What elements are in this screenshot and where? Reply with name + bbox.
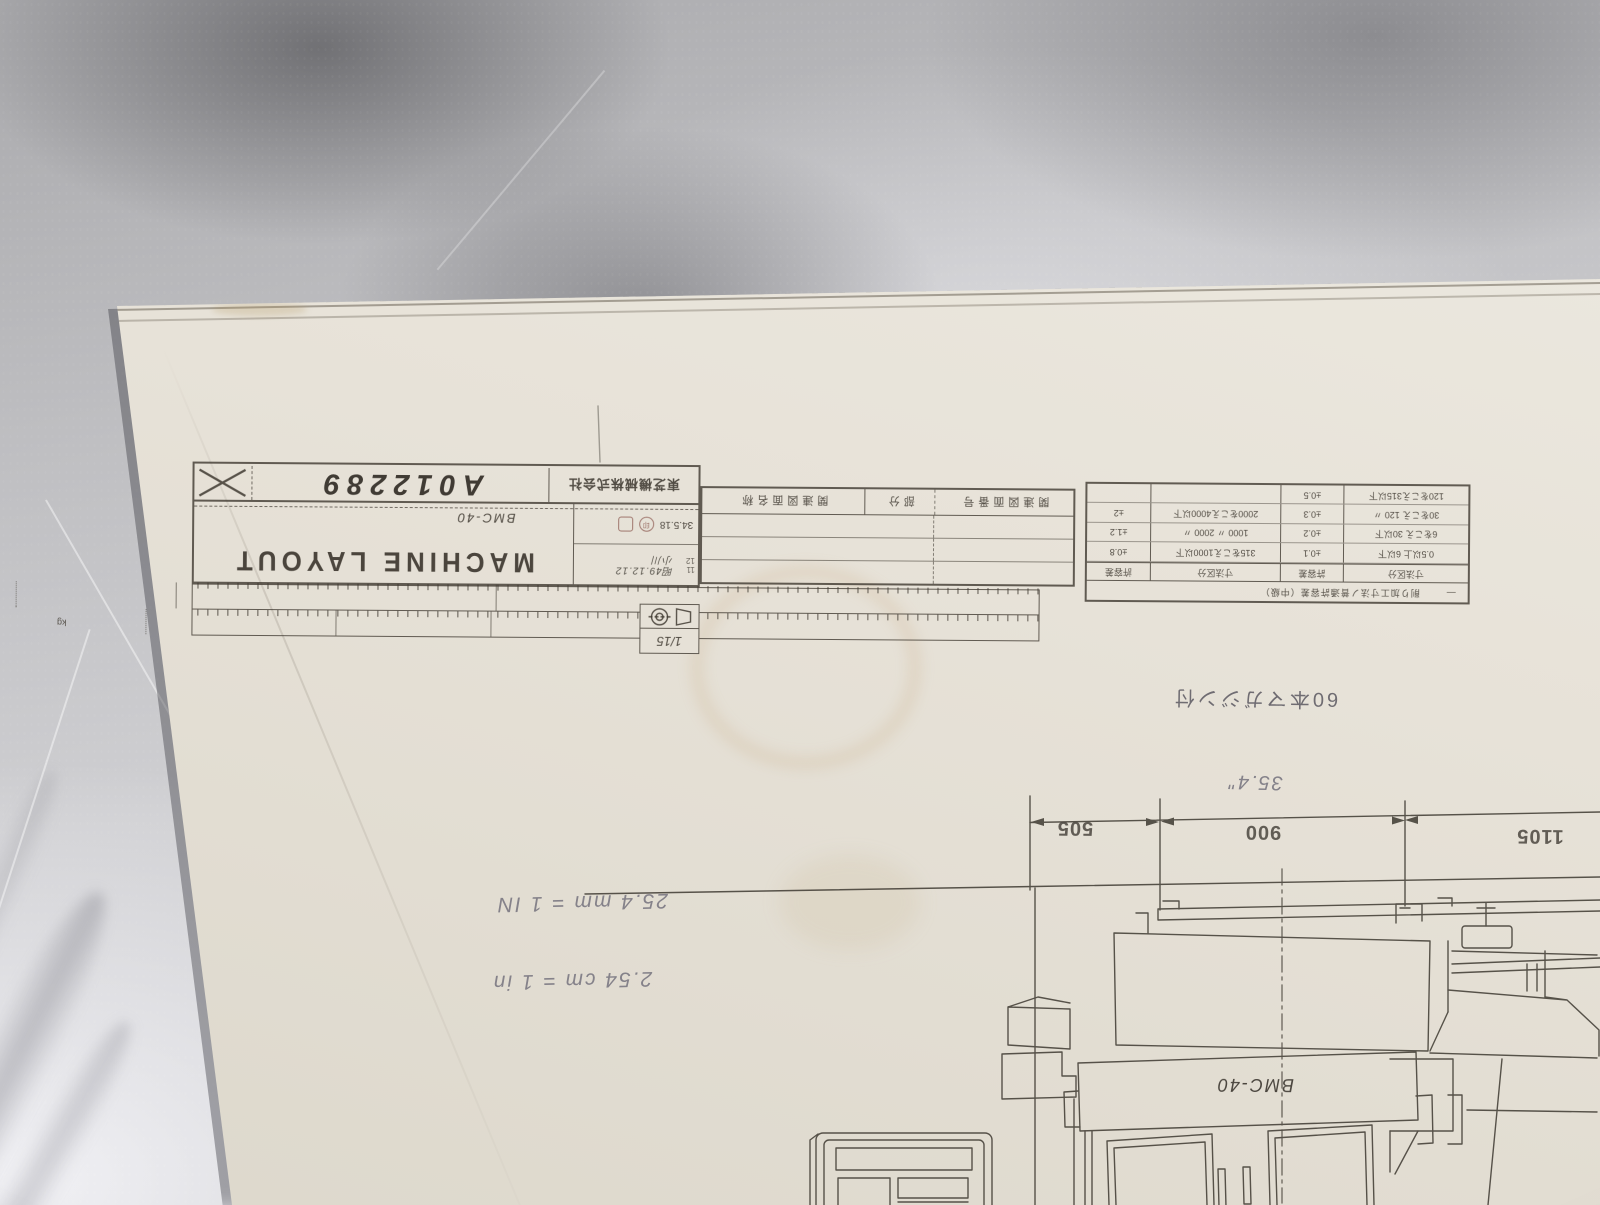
cell-divider [490, 612, 491, 637]
drawing-title-area: MACHINE LAYOUT BMC-40 [194, 502, 574, 585]
tolerance-row: 120をこえ315以下 ±0.5 [1087, 484, 1468, 506]
cell-divider [335, 611, 336, 636]
related-table-empty-row [702, 560, 1073, 585]
header-part: 部分 [864, 489, 934, 514]
drawing-number: A012289 [252, 466, 548, 502]
scale-projection-cells: 1/15 [639, 604, 699, 654]
drawing-title: MACHINE LAYOUT [194, 544, 573, 579]
col-header-size: 寸法区分 [1151, 562, 1281, 581]
scale-cell: 1/15 [640, 628, 698, 653]
hanko-stamp-icon: 印 [639, 517, 654, 532]
dimension-900: 900 [1235, 820, 1291, 843]
stamp-row: 34.5.18 印 [574, 504, 698, 544]
related-drawings-table: 関連図面番号 部分 関連図面名称 [700, 486, 1076, 587]
tolerance-header-row: 寸法区分 許容差 寸法区分 許容差 [1087, 561, 1468, 582]
col-header-size: 寸法区分 [1344, 563, 1468, 582]
col-header-tolerance: 許容差 [1281, 563, 1344, 582]
check-date: 昭49.12.12 [615, 565, 673, 576]
cell-divider [145, 609, 146, 634]
model-number: BMC-40 [428, 510, 543, 526]
tolerance-row: 6をこえ 30以下 ±0.2 1000 〃 2000 〃 ±1.2 [1087, 523, 1468, 545]
tolerance-title-text: 削り加工寸法ノ普通許容差（中級） [1260, 587, 1420, 597]
cell-divider [176, 582, 177, 608]
tolerance-table: — 削り加工寸法ノ普通許容差（中級） 寸法区分 許容差 寸法区分 許容差 0.5… [1085, 482, 1471, 605]
header-drawing-name: 関連図面名称 [702, 488, 864, 514]
title-block-strip: — 削り加工寸法ノ普通許容差（中級） 寸法区分 許容差 寸法区分 許容差 0.5… [191, 458, 1472, 645]
tolerance-row: 0.5以上 6以下 ±0.1 315をこえ1000以下 ±0.8 [1087, 542, 1468, 564]
related-table-empty-row [702, 514, 1073, 540]
machine-model-label: BMC-40 [1200, 1074, 1310, 1096]
row-marks: 11 12 [677, 556, 695, 574]
revision-mark-box [194, 466, 252, 500]
cell-divider [496, 585, 497, 611]
checker-signature: 小川 [615, 554, 673, 565]
tolerance-row: 30をこえ 120 〃 ±0.3 2000をこえ4000以下 ±2 [1087, 503, 1468, 525]
tolerance-table-title: — 削り加工寸法ノ普通許容差（中級） [1087, 580, 1468, 603]
projection-cell [640, 605, 698, 629]
related-table-empty-row [702, 537, 1073, 563]
dimension-1105: 1105 [1505, 824, 1575, 848]
check-row: 11 12 昭49.12.12 小川 [574, 544, 698, 585]
cell-divider [16, 581, 17, 607]
tool-magazine-note: 60本マガジン付 [1105, 684, 1405, 717]
photo-of-machine-layout-drawing: 505 900 1105 35.4" 60本マガジン付 25.4 mm = 1 … [0, 0, 1600, 1205]
check-date-signature: 昭49.12.12 小川 [615, 554, 673, 576]
edge-stain [212, 303, 307, 316]
weight-unit-label: kg [57, 618, 67, 628]
scale-value: 1/15 [657, 634, 682, 649]
title-block-tick-rows: kg A1 [191, 584, 1039, 642]
date-stamp: 34.5.18 [660, 519, 693, 530]
hanko-stamp-icon [618, 517, 633, 532]
dimension-505: 505 [1047, 816, 1103, 839]
title-block-upper: 11 12 昭49.12.12 小川 34.5.18 印 MACHINE LAY… [194, 500, 699, 586]
col-header-tolerance: 許容差 [1087, 561, 1151, 580]
title-block-lower: 東芝機械株式会社 A012289 [194, 466, 698, 504]
related-table-header-row: 関連図面番号 部分 関連図面名称 [702, 488, 1073, 517]
x-mark-icon [193, 466, 251, 500]
company-name: 東芝機械株式会社 [548, 468, 698, 503]
title-block: 11 12 昭49.12.12 小川 34.5.18 印 MACHINE LAY… [192, 462, 701, 588]
tolerance-dash: — [1446, 588, 1456, 597]
header-drawing-number: 関連図面番号 [934, 490, 1073, 516]
inch-dimension-note: 35.4" [1200, 769, 1311, 795]
projection-symbol-icon [645, 606, 693, 626]
stain-blob [780, 855, 920, 950]
approval-stamp-grid: 11 12 昭49.12.12 小川 34.5.18 印 [573, 504, 699, 585]
